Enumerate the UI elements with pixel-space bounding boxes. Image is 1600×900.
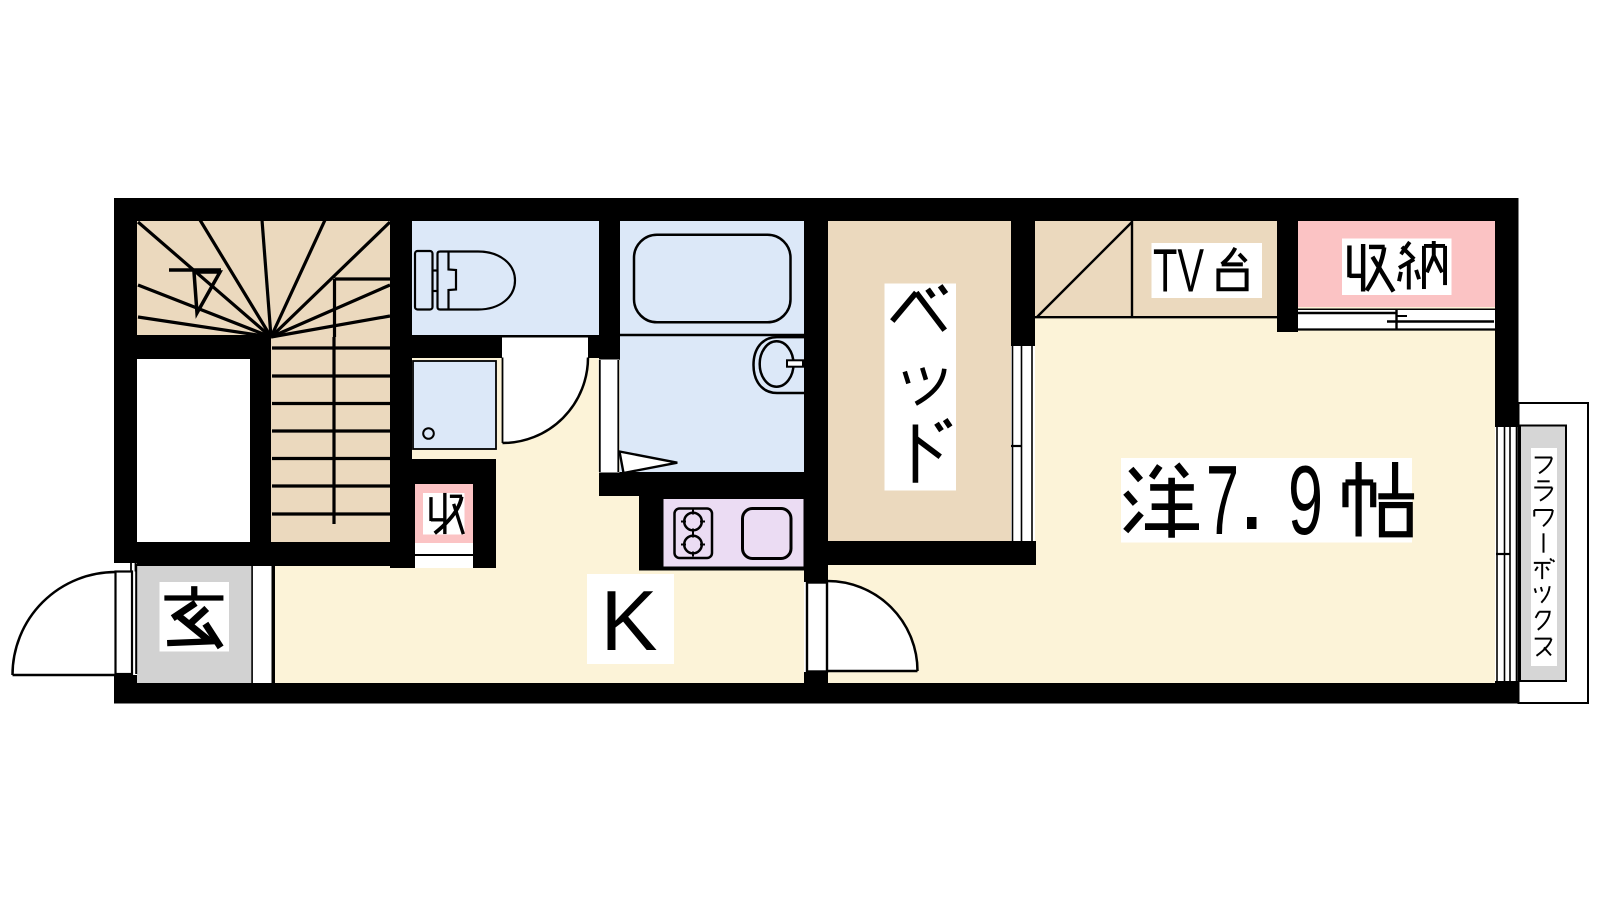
svg-text:TV: TV	[1153, 237, 1204, 306]
svg-text:9: 9	[1288, 445, 1323, 555]
svg-text:7: 7	[1206, 445, 1239, 555]
svg-text:K: K	[601, 574, 658, 669]
